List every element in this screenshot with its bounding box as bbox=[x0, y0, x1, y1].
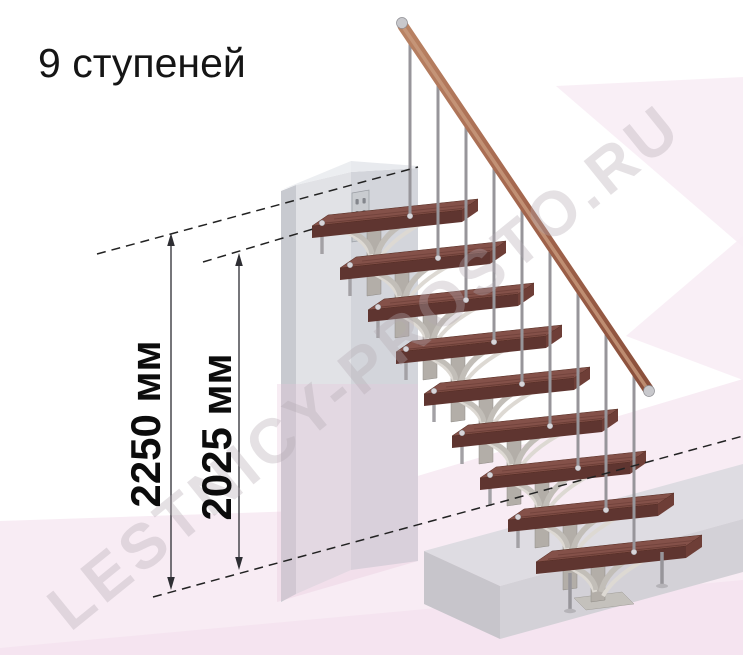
dimension-label-floor-to-floor: 2250 мм bbox=[122, 340, 170, 507]
page-title: 9 ступеней bbox=[38, 40, 246, 87]
staircase-illustration bbox=[0, 0, 743, 655]
staircase-product-image: LESTNICY-PROSTO.RU 9 ступеней 2250 мм 20… bbox=[0, 0, 743, 655]
handrail-end-cap bbox=[644, 386, 655, 397]
dimension-label-floor-to-top-step: 2025 мм bbox=[193, 353, 241, 520]
handrail-top-cap bbox=[397, 18, 408, 29]
